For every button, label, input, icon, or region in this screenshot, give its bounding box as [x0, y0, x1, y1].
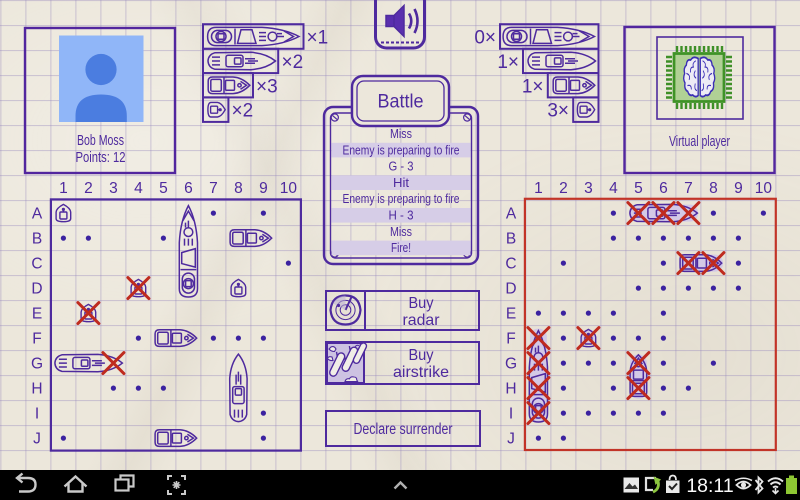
- svg-text:8: 8: [709, 180, 718, 197]
- svg-text:2: 2: [559, 180, 568, 197]
- svg-text:Battle: Battle: [378, 92, 424, 113]
- svg-text:7: 7: [209, 180, 218, 197]
- svg-text:3: 3: [584, 180, 593, 197]
- svg-text:J: J: [33, 430, 41, 447]
- svg-text:C: C: [31, 255, 42, 272]
- svg-text:4: 4: [609, 180, 618, 197]
- svg-text:3: 3: [109, 180, 118, 197]
- svg-text:G: G: [31, 355, 43, 372]
- svg-text:Buy: Buy: [409, 295, 434, 312]
- svg-text:D: D: [505, 280, 516, 297]
- svg-text:Enemy is preparing to fire: Enemy is preparing to fire: [343, 143, 460, 157]
- svg-text:×2: ×2: [282, 52, 304, 73]
- svg-text:5: 5: [159, 180, 168, 197]
- svg-text:airstrike: airstrike: [393, 364, 449, 381]
- svg-text:Hit: Hit: [393, 176, 410, 190]
- svg-text:Points: 12: Points: 12: [76, 150, 126, 166]
- svg-text:3×: 3×: [547, 101, 569, 122]
- svg-text:1: 1: [534, 180, 543, 197]
- svg-text:J: J: [507, 430, 515, 447]
- svg-text:Buy: Buy: [409, 347, 434, 364]
- svg-text:7: 7: [684, 180, 693, 197]
- svg-text:I: I: [509, 405, 513, 422]
- svg-text:9: 9: [734, 180, 743, 197]
- svg-text:F: F: [32, 330, 41, 347]
- svg-text:×2: ×2: [232, 101, 254, 122]
- svg-text:1: 1: [59, 180, 68, 197]
- svg-text:Miss: Miss: [390, 127, 412, 141]
- svg-text:Bob Moss: Bob Moss: [77, 133, 124, 149]
- svg-text:18:11: 18:11: [686, 475, 733, 497]
- svg-text:1×: 1×: [522, 77, 544, 98]
- svg-text:×3: ×3: [256, 77, 278, 98]
- svg-text:I: I: [35, 405, 39, 422]
- svg-text:6: 6: [184, 180, 193, 197]
- svg-text:5: 5: [634, 180, 643, 197]
- svg-text:H: H: [31, 380, 42, 397]
- svg-text:radar: radar: [403, 312, 441, 329]
- svg-text:10: 10: [280, 180, 298, 197]
- svg-text:E: E: [32, 305, 42, 322]
- svg-text:Declare surrender: Declare surrender: [354, 421, 453, 438]
- svg-text:Fire!: Fire!: [391, 241, 411, 255]
- svg-text:Miss: Miss: [390, 225, 412, 239]
- svg-text:0×: 0×: [474, 28, 496, 49]
- svg-text:2: 2: [84, 180, 93, 197]
- svg-text:F: F: [506, 330, 515, 347]
- svg-text:G - 3: G - 3: [389, 160, 414, 174]
- svg-text:G: G: [505, 355, 517, 372]
- svg-text:Enemy is preparing to fire: Enemy is preparing to fire: [343, 192, 460, 206]
- svg-text:B: B: [506, 230, 516, 247]
- svg-text:10: 10: [755, 180, 773, 197]
- svg-text:8: 8: [234, 180, 243, 197]
- svg-text:H - 3: H - 3: [389, 209, 414, 223]
- svg-text:×1: ×1: [307, 28, 329, 49]
- svg-text:B: B: [32, 230, 42, 247]
- svg-text:A: A: [506, 205, 517, 222]
- svg-text:Virtual player: Virtual player: [669, 134, 730, 150]
- svg-text:D: D: [31, 280, 42, 297]
- svg-text:4: 4: [134, 180, 143, 197]
- svg-text:9: 9: [259, 180, 268, 197]
- svg-text:E: E: [506, 305, 516, 322]
- svg-text:1×: 1×: [497, 52, 519, 73]
- svg-text:6: 6: [659, 180, 668, 197]
- svg-text:C: C: [505, 255, 516, 272]
- svg-text:H: H: [505, 380, 516, 397]
- svg-text:A: A: [32, 205, 43, 222]
